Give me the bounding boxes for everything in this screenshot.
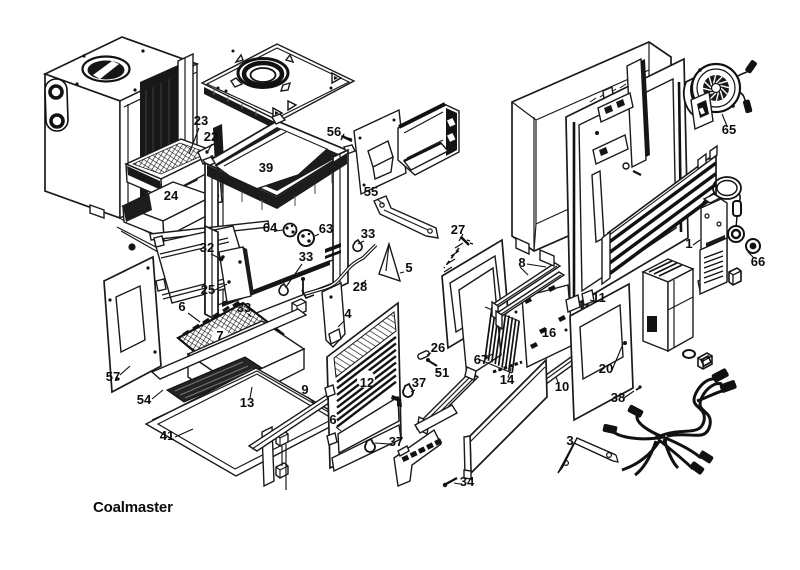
svg-text:6: 6 (178, 299, 185, 314)
svg-text:37: 37 (389, 434, 403, 449)
svg-text:10: 10 (555, 379, 569, 394)
svg-text:8: 8 (518, 255, 525, 270)
svg-text:16: 16 (542, 325, 556, 340)
svg-text:26: 26 (431, 340, 445, 355)
svg-text:67: 67 (474, 352, 488, 367)
svg-text:22: 22 (204, 129, 218, 144)
svg-text:24: 24 (164, 188, 179, 203)
svg-text:6: 6 (329, 412, 336, 427)
svg-text:20: 20 (599, 361, 613, 376)
svg-text:57: 57 (106, 369, 120, 384)
svg-text:33: 33 (361, 226, 375, 241)
svg-text:66: 66 (751, 254, 765, 269)
svg-text:34: 34 (460, 474, 475, 489)
svg-text:25: 25 (201, 282, 215, 297)
svg-text:Coalmaster: Coalmaster (93, 499, 173, 516)
svg-text:27: 27 (451, 222, 465, 237)
svg-text:4: 4 (344, 306, 352, 321)
svg-text:65: 65 (722, 122, 736, 137)
svg-text:11: 11 (592, 290, 606, 305)
svg-text:33: 33 (299, 249, 313, 264)
svg-text:39: 39 (259, 160, 273, 175)
svg-text:54: 54 (137, 392, 152, 407)
svg-text:37: 37 (412, 375, 426, 390)
svg-text:1: 1 (685, 236, 692, 251)
svg-text:64: 64 (263, 220, 278, 235)
svg-text:5: 5 (405, 260, 412, 275)
svg-text:3: 3 (566, 433, 573, 448)
svg-text:13: 13 (240, 395, 254, 410)
svg-text:55: 55 (364, 184, 378, 199)
svg-text:28: 28 (353, 279, 367, 294)
svg-text:9: 9 (301, 382, 308, 397)
svg-text:7: 7 (216, 328, 223, 343)
svg-text:63: 63 (319, 221, 333, 236)
svg-text:14: 14 (500, 372, 515, 387)
svg-text:32: 32 (200, 240, 214, 255)
svg-text:41: 41 (160, 428, 174, 443)
svg-text:33: 33 (237, 300, 251, 315)
svg-text:12: 12 (360, 375, 374, 390)
svg-text:56: 56 (327, 124, 341, 139)
svg-text:38: 38 (611, 390, 625, 405)
svg-text:51: 51 (435, 365, 449, 380)
svg-text:23: 23 (194, 113, 208, 128)
